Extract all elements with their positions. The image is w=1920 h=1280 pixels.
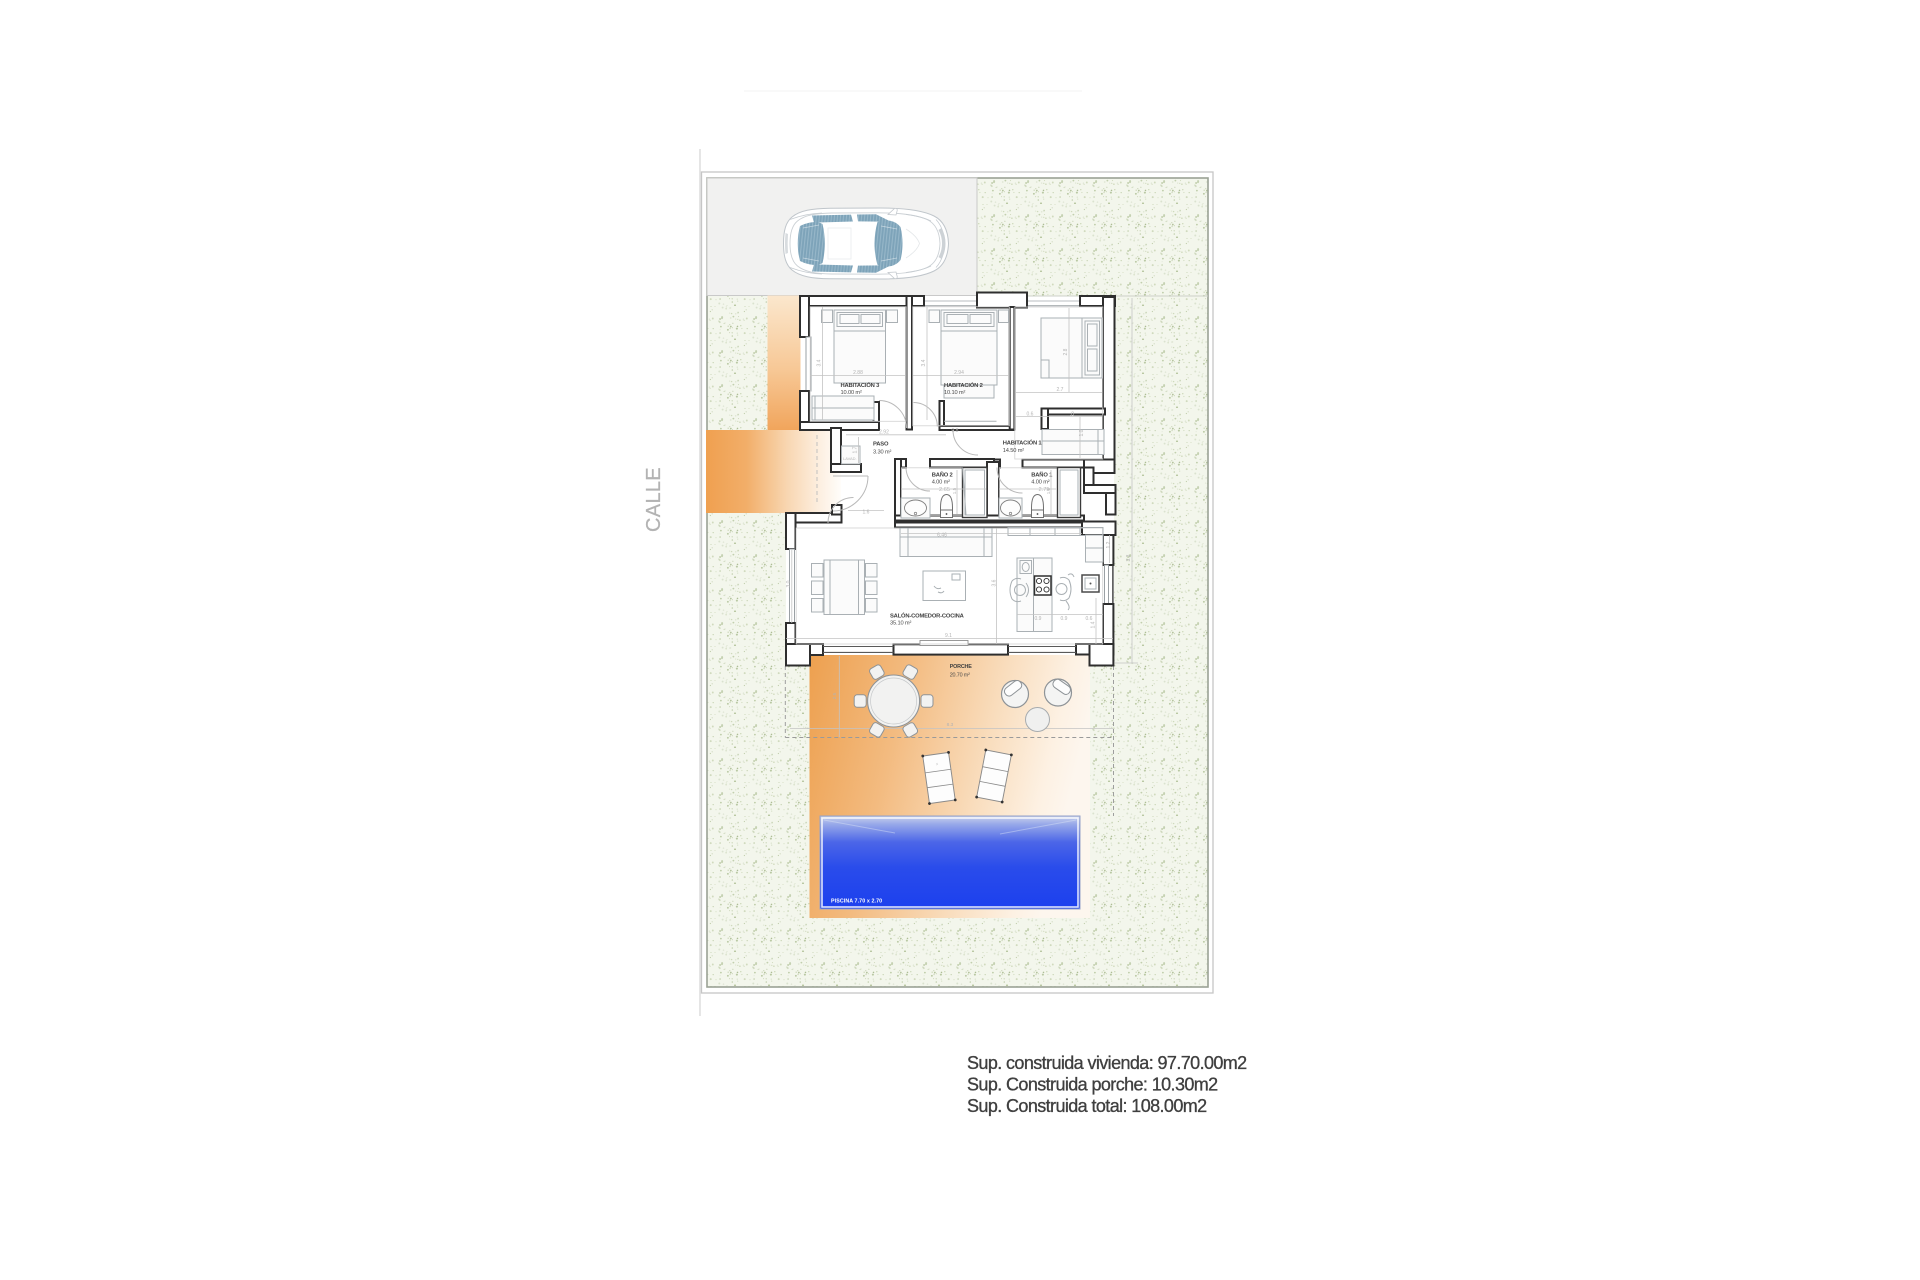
svg-text:Sup. construida vivienda: 97.7: Sup. construida vivienda: 97.70.00m2	[967, 1053, 1247, 1073]
svg-text:0.6: 0.6	[1086, 616, 1093, 622]
svg-text:Sup. Construida porche: 10.30m: Sup. Construida porche: 10.30m2	[967, 1075, 1218, 1095]
svg-text:HABITACIÓN 3: HABITACIÓN 3	[841, 381, 881, 389]
svg-text:6.46: 6.46	[937, 533, 947, 539]
svg-text:9.1: 9.1	[945, 633, 952, 639]
svg-text:3.4: 3.4	[817, 359, 823, 366]
svg-text:8.3: 8.3	[947, 722, 954, 728]
svg-text:0.6: 0.6	[1027, 412, 1034, 418]
svg-text:4.00 m²: 4.00 m²	[1031, 480, 1049, 486]
svg-text:1.0: 1.0	[1079, 429, 1085, 436]
svg-text:0.9: 0.9	[1035, 616, 1042, 622]
svg-text:BAÑO 1: BAÑO 1	[1031, 472, 1053, 479]
svg-text:3.0: 3.0	[786, 580, 792, 587]
svg-text:1.5: 1.5	[952, 487, 957, 494]
svg-text:3.4: 3.4	[921, 359, 927, 366]
svg-text:HABITACIÓN 1: HABITACIÓN 1	[1003, 439, 1043, 447]
svg-text:14.50 m²: 14.50 m²	[1003, 448, 1025, 454]
svg-text:3.30 m²: 3.30 m²	[873, 450, 891, 456]
svg-text:Sup. Construida total: 108.00m: Sup. Construida total: 108.00m2	[967, 1096, 1207, 1116]
svg-text:BAÑO 2: BAÑO 2	[932, 472, 953, 479]
svg-text:PISCINA 7.70 x 2.70: PISCINA 7.70 x 2.70	[831, 899, 882, 905]
svg-text:LAVAD.: LAVAD.	[843, 456, 857, 461]
svg-text:1.4: 1.4	[1091, 621, 1097, 628]
svg-text:HABITACIÓN 2: HABITACIÓN 2	[944, 381, 983, 389]
svg-text:4.00 m²: 4.00 m²	[932, 480, 950, 486]
svg-text:10.10 m²: 10.10 m²	[944, 390, 966, 396]
svg-text:2.5: 2.5	[832, 692, 838, 699]
svg-text:2.88: 2.88	[853, 370, 863, 376]
svg-text:10.00 m²: 10.00 m²	[841, 390, 863, 396]
svg-text:PASO: PASO	[873, 441, 889, 447]
svg-text:2.94: 2.94	[954, 370, 964, 376]
svg-text:PORCHE: PORCHE	[950, 664, 973, 670]
svg-text:20.70 m²: 20.70 m²	[950, 672, 970, 678]
svg-text:0.9: 0.9	[1061, 616, 1068, 622]
svg-text:2.92: 2.92	[879, 430, 889, 436]
svg-text:1.6: 1.6	[863, 510, 870, 516]
svg-text:0.8: 0.8	[952, 428, 959, 434]
svg-text:3.6: 3.6	[992, 579, 998, 586]
svg-text:SALÓN-COMEDOR-COCINA: SALÓN-COMEDOR-COCINA	[890, 612, 965, 620]
svg-text:CALLE: CALLE	[643, 467, 665, 532]
svg-text:1.7: 1.7	[853, 446, 859, 453]
svg-text:2.65: 2.65	[939, 487, 950, 493]
svg-text:.8: .8	[1070, 412, 1074, 418]
svg-text:35.10 m²: 35.10 m²	[890, 621, 912, 627]
svg-text:2.7: 2.7	[1057, 387, 1064, 393]
svg-text:1.2: 1.2	[1106, 541, 1112, 548]
svg-text:3.3: 3.3	[1126, 554, 1132, 561]
svg-text:2.8: 2.8	[1063, 348, 1069, 355]
svg-text:1.5: 1.5	[1046, 487, 1051, 494]
